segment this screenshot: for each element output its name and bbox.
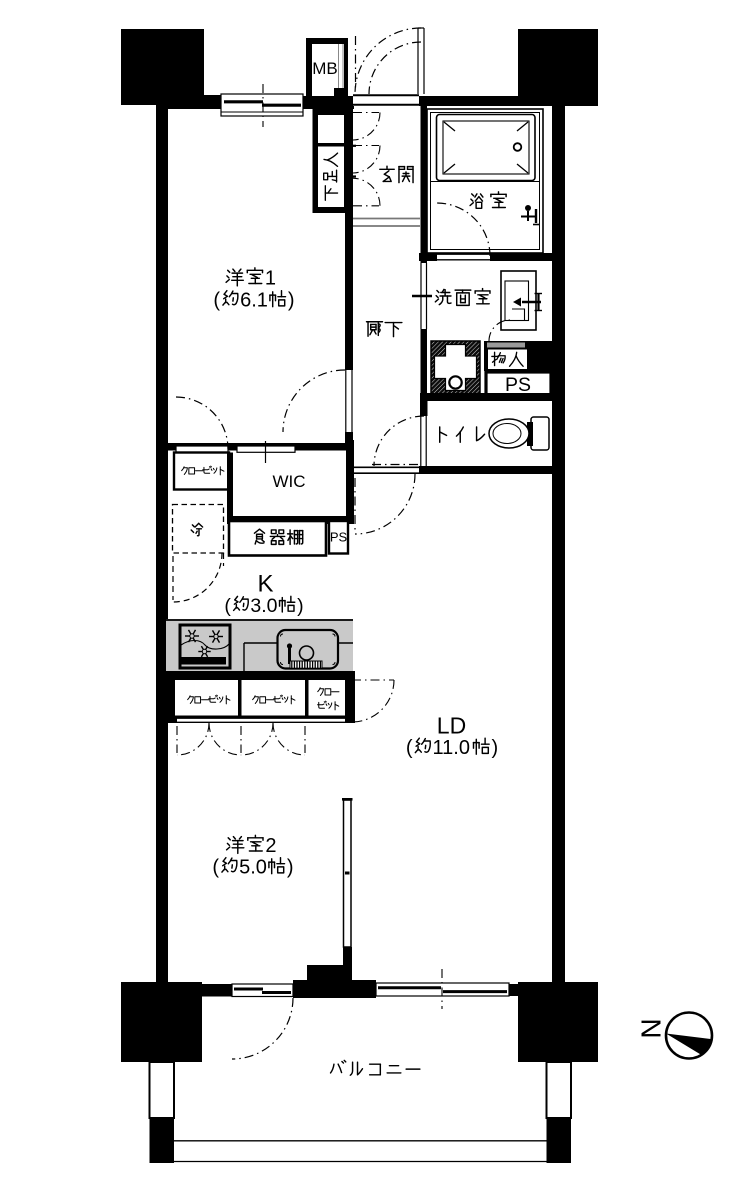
svg-text:LD: LD [437, 712, 466, 738]
svg-text:): ) [288, 290, 295, 312]
svg-text:(: ( [212, 857, 219, 879]
svg-text:6.1: 6.1 [240, 290, 268, 312]
svg-text:N: N [636, 1018, 667, 1038]
svg-text:): ) [287, 857, 294, 879]
svg-text:): ) [297, 595, 304, 617]
svg-text:PS: PS [505, 374, 531, 396]
svg-text:(: ( [406, 737, 413, 759]
svg-text:2: 2 [265, 835, 276, 857]
svg-text:): ) [492, 737, 499, 759]
svg-text:11.0: 11.0 [433, 737, 470, 759]
svg-text:(: ( [213, 290, 220, 312]
svg-text:PS: PS [330, 530, 348, 545]
svg-text:K: K [257, 571, 273, 598]
svg-text:1: 1 [265, 268, 276, 290]
svg-text:(: ( [224, 595, 231, 617]
svg-text:5.0: 5.0 [239, 857, 267, 879]
svg-text:MB: MB [312, 59, 338, 78]
svg-text:3.0: 3.0 [250, 595, 277, 617]
svg-text:WIC: WIC [272, 472, 305, 491]
